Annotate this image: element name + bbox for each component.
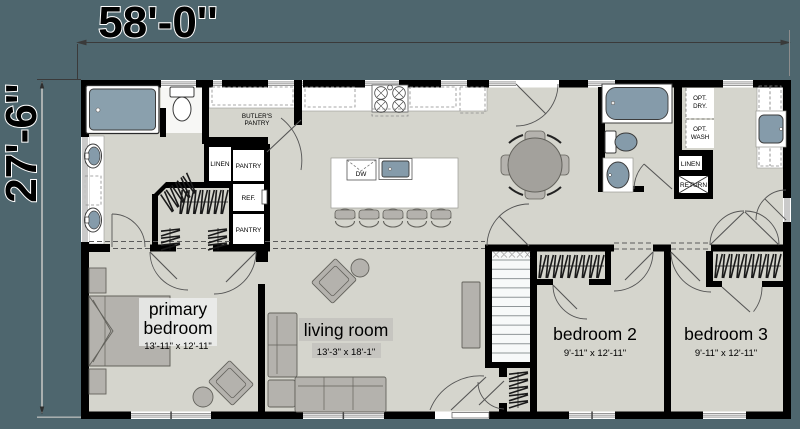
svg-text:RETURN: RETURN — [680, 182, 707, 189]
svg-text:BUTLER'S: BUTLER'S — [242, 113, 272, 120]
svg-text:13'-3" x 18'-1": 13'-3" x 18'-1" — [317, 347, 375, 358]
svg-text:27'-6'': 27'-6'' — [0, 83, 46, 202]
svg-text:bedroom: bedroom — [143, 318, 212, 338]
svg-text:13'-11" x 12'-11": 13'-11" x 12'-11" — [144, 341, 212, 352]
svg-text:9'-11" x 12'-11": 9'-11" x 12'-11" — [564, 348, 626, 359]
svg-text:PANTRY: PANTRY — [236, 227, 262, 234]
svg-text:REF.: REF. — [241, 195, 255, 202]
svg-text:WASH: WASH — [691, 134, 709, 141]
svg-text:PANTRY: PANTRY — [245, 120, 271, 127]
svg-text:OPT.: OPT. — [693, 95, 707, 102]
svg-text:OPT.: OPT. — [693, 126, 707, 133]
svg-text:primary: primary — [149, 299, 208, 319]
svg-text:PANTRY: PANTRY — [236, 163, 262, 170]
svg-text:DRY.: DRY. — [693, 103, 707, 110]
svg-text:9'-11" x 12'-11": 9'-11" x 12'-11" — [695, 348, 757, 359]
svg-text:bedroom 2: bedroom 2 — [553, 324, 637, 344]
svg-text:DW: DW — [356, 171, 368, 178]
svg-text:LINEN: LINEN — [681, 161, 700, 168]
svg-text:living room: living room — [304, 320, 389, 340]
svg-text:bedroom 3: bedroom 3 — [684, 324, 768, 344]
svg-text:LINEN: LINEN — [210, 161, 229, 168]
svg-text:58'-0'': 58'-0'' — [98, 0, 217, 47]
